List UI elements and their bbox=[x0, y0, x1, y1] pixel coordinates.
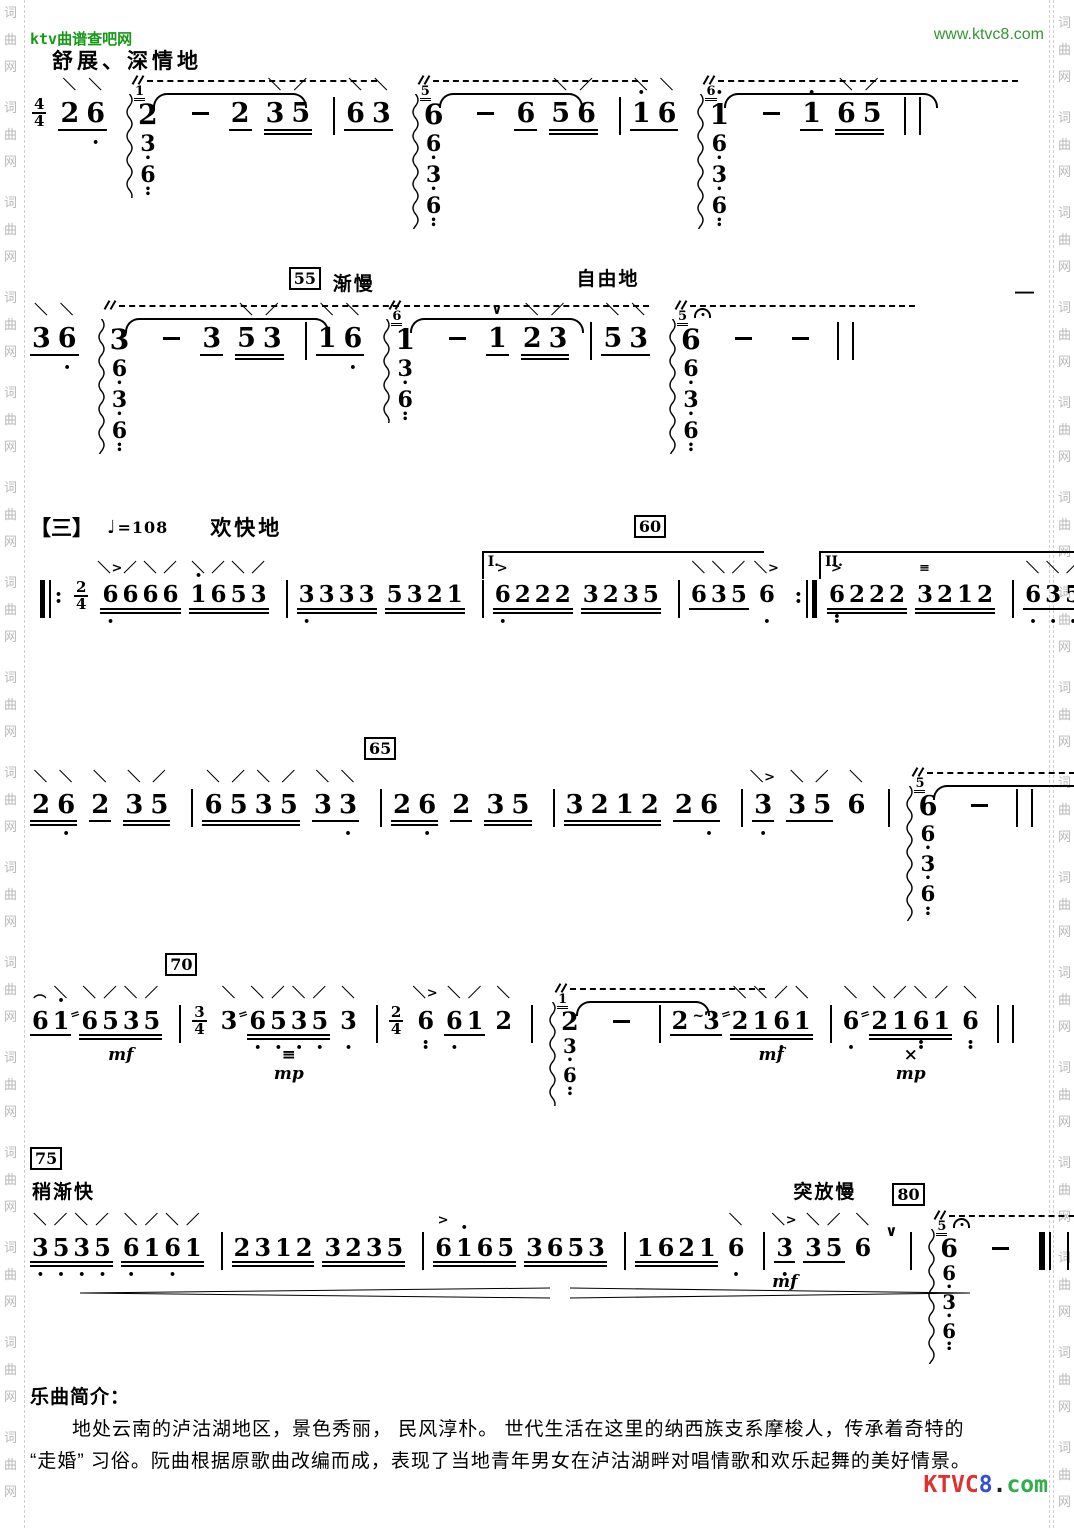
note-number: 3 bbox=[407, 583, 423, 607]
note-group: 26• bbox=[673, 792, 720, 819]
dash-note bbox=[192, 112, 209, 115]
note: 6>• • bbox=[829, 583, 845, 607]
note: 1／ bbox=[467, 1008, 484, 1033]
octave-dot-high: • bbox=[195, 573, 202, 578]
jianpu-line: 2＼6＼•2＼3＼5／6＼5／3＼5／3＼3＼•6526•235321226•3… bbox=[30, 792, 1041, 921]
watermark-char: 网 bbox=[4, 911, 17, 930]
barline bbox=[590, 322, 592, 360]
note-group: 2~3 bbox=[670, 1008, 722, 1033]
octave-dot-low: • • bbox=[116, 443, 122, 453]
note: 3＼• bbox=[291, 1008, 308, 1033]
stroke-marks: ＼ bbox=[240, 304, 254, 317]
note: 3 bbox=[254, 1235, 271, 1260]
note-number: 5 bbox=[387, 1235, 404, 1260]
watermark-char: 网 bbox=[4, 151, 17, 170]
chord-stack-note: 6• • bbox=[681, 420, 701, 453]
note: 5／ bbox=[731, 583, 747, 607]
watermark-char: 词 bbox=[4, 192, 17, 211]
note-group: 3＼5／ bbox=[803, 1235, 844, 1260]
note-number: 6 bbox=[249, 1008, 266, 1033]
ktvc8-logo[interactable]: KTVC8.com bbox=[923, 1472, 1048, 1498]
note-number: 6 bbox=[759, 583, 775, 607]
note: 1＼• bbox=[632, 100, 651, 128]
tremolo-mark: = bbox=[69, 1008, 82, 1021]
beam-row: 6＼•1／ bbox=[444, 1008, 485, 1033]
note-number: 2 bbox=[523, 325, 542, 353]
note-number: 5 bbox=[511, 792, 529, 819]
note: 2 bbox=[296, 1235, 313, 1260]
watermark-column-left: 词曲网词曲网词曲网词曲网词曲网词曲网词曲网词曲网词曲网词曲网词曲网词曲网词曲网词… bbox=[4, 0, 22, 1528]
note: 6> bbox=[435, 1235, 452, 1260]
chord-stack-note: 6• • bbox=[424, 195, 444, 228]
note: 6＼• bbox=[58, 325, 77, 353]
note-number: 2 bbox=[452, 792, 470, 819]
note-number: 6 bbox=[700, 792, 718, 819]
jianpu-line: 3＼•5／•3＼•5／•6＼•1／6＼•1／231232356>1•653653… bbox=[30, 1235, 1074, 1364]
watermark-char: 曲 bbox=[4, 789, 17, 808]
barline-wrap: 65 bbox=[380, 792, 382, 832]
chord-stack-note: 6• • bbox=[110, 420, 130, 453]
note-number: 2 bbox=[296, 1235, 313, 1260]
intro-paragraph-line-2: “走婚” 习俗。阮曲根据原歌曲改编而成，表现了当地青年男女在泸沽湖畔对唱情歌和欢… bbox=[30, 1446, 971, 1473]
note: 5 bbox=[511, 792, 529, 819]
note-group: 6 bbox=[514, 100, 537, 128]
stroke-marks: ＼ bbox=[839, 79, 853, 92]
note: 3＼ bbox=[266, 100, 285, 128]
note-number: 3 bbox=[366, 1235, 383, 1260]
chord-stack-note: 3• bbox=[709, 164, 729, 192]
stroke-marks: > bbox=[497, 562, 509, 575]
note-number: 5 bbox=[863, 100, 882, 128]
beam-row: 6＼•1／6＼•1／ bbox=[121, 1235, 204, 1260]
note: 6︵ bbox=[32, 1008, 49, 1033]
dash-note bbox=[735, 337, 752, 340]
note-number: 5 bbox=[1065, 583, 1074, 607]
note-number: 1 bbox=[933, 1008, 950, 1033]
watermark-char: 曲 bbox=[4, 1169, 17, 1188]
note-number: 3 bbox=[251, 583, 267, 607]
note: 5＼ bbox=[231, 583, 247, 607]
note: 6＼ bbox=[855, 1235, 872, 1260]
note: =2＼ bbox=[871, 1008, 888, 1033]
time-signature: 24 bbox=[389, 1005, 403, 1037]
note: 6＼>• • bbox=[417, 1008, 434, 1033]
beam-row: 2＼ bbox=[89, 792, 111, 819]
note-group: =6＼5／3＼5／mf bbox=[79, 1008, 162, 1033]
note: 1 bbox=[447, 583, 463, 607]
stroke-marks: ／ bbox=[732, 562, 746, 575]
stroke-marks: ＼ bbox=[63, 79, 77, 92]
arpeggio-wavy-line bbox=[382, 319, 391, 423]
note: 5 bbox=[567, 1235, 584, 1260]
beam-row: 6︵1＼• bbox=[30, 1008, 71, 1033]
note-group: 2＼3／ bbox=[521, 325, 570, 353]
octave-dot-low: • • bbox=[967, 1040, 974, 1050]
note-number: 5 bbox=[280, 792, 298, 819]
watermark-char: 网 bbox=[4, 1291, 17, 1310]
barline bbox=[678, 580, 680, 618]
note: 3＼ bbox=[314, 792, 332, 819]
octave-dot-low: • bbox=[1070, 619, 1074, 624]
watermark-char: 曲 bbox=[1058, 894, 1071, 913]
stroke-marks: ＼ bbox=[497, 987, 511, 1000]
note-group: 2312 bbox=[232, 1235, 315, 1260]
time-signature-denominator: 4 bbox=[192, 1020, 206, 1037]
watermark-char: 曲 bbox=[4, 124, 17, 143]
note-number: 6 bbox=[691, 583, 707, 607]
note-number: 2 bbox=[678, 1235, 695, 1260]
note-number: 2 bbox=[732, 1008, 749, 1033]
barline bbox=[333, 97, 335, 135]
note-number: 1 bbox=[753, 1008, 770, 1033]
chord-stack-note: 6• bbox=[110, 358, 130, 386]
octave-dot-low: • • bbox=[402, 412, 408, 422]
stroke-marks: ／ bbox=[145, 987, 159, 1000]
time-signature: 44 bbox=[32, 97, 46, 129]
barline bbox=[221, 1232, 223, 1270]
note-number: 3 bbox=[125, 792, 143, 819]
note-number: 3 bbox=[372, 100, 391, 128]
note-number: 5 bbox=[291, 100, 310, 128]
stroke-marks: ＼ bbox=[795, 987, 809, 1000]
note: 2 bbox=[869, 583, 885, 607]
note-group: 6＼>• • bbox=[415, 1008, 436, 1033]
site-url-link[interactable]: www.ktvc8.com bbox=[934, 26, 1044, 44]
note: 6＼• bbox=[164, 1235, 181, 1260]
note-group: 3＼5／ bbox=[264, 100, 313, 128]
note-number: 1 bbox=[191, 583, 207, 607]
beam-row: 3212 bbox=[564, 792, 661, 819]
barline bbox=[1039, 1232, 1045, 1270]
note-group: 35 bbox=[484, 792, 531, 819]
barline bbox=[830, 1005, 832, 1043]
dash-note bbox=[449, 337, 466, 340]
jianpu-line: 6︵1＼•=6＼5／3＼5／mf70343＼=6＼•5／•3＼•5／•≡ mp3… bbox=[30, 1008, 1022, 1106]
octave-dot-low: • bbox=[688, 412, 694, 417]
barline-wrap: 突放慢 bbox=[763, 1235, 765, 1274]
stroke-marks: ／ bbox=[294, 79, 308, 92]
note-group: 6＼• • bbox=[960, 1008, 981, 1033]
note-group: 26• bbox=[391, 792, 438, 819]
stroke-marks: ＼ bbox=[729, 1214, 743, 1227]
note-number: 6 bbox=[204, 792, 222, 819]
note: 2 bbox=[234, 1235, 251, 1260]
stroke-marks: ＼ bbox=[316, 771, 330, 784]
chord-block: 123•6• • bbox=[548, 1008, 579, 1106]
watermark-char: 词 bbox=[4, 382, 17, 401]
watermark-char: 词 bbox=[1058, 392, 1071, 411]
note: 6＼• bbox=[123, 1235, 140, 1260]
note-group: 1∨ bbox=[486, 325, 509, 353]
note-number: 5 bbox=[311, 1008, 328, 1033]
note: 3• bbox=[299, 583, 315, 607]
note: 2＼ bbox=[523, 325, 542, 353]
octave-dot-low: • bbox=[499, 619, 506, 624]
stroke-marks: ＼ bbox=[554, 79, 568, 92]
stroke-marks: ＼ bbox=[754, 987, 768, 1000]
beam-row: 6＼3＼5／ bbox=[689, 583, 749, 607]
octave-dot-low: • bbox=[58, 1272, 65, 1277]
note-number: 2 bbox=[60, 100, 79, 128]
dash-note bbox=[792, 337, 809, 340]
note-number: 2 bbox=[591, 792, 609, 819]
beam-row: 26• bbox=[391, 792, 438, 819]
note: 2 bbox=[393, 792, 411, 819]
note: 3＼ bbox=[788, 792, 806, 819]
stroke-marks: ＼> bbox=[413, 987, 439, 1000]
octave-dot-low: • bbox=[925, 876, 931, 881]
stroke-marks: ／ bbox=[164, 562, 178, 575]
note-number: 2 bbox=[555, 583, 571, 607]
watermark-char: 曲 bbox=[1058, 419, 1071, 438]
note-number: 6 bbox=[435, 1235, 452, 1260]
note: 5／ bbox=[230, 792, 248, 819]
barline bbox=[179, 1005, 181, 1043]
chord-column: 566•3•6• • bbox=[424, 100, 444, 228]
note: 6＼ bbox=[847, 792, 865, 819]
barline-wrap bbox=[888, 792, 890, 832]
logo-part-blue: 8 bbox=[979, 1472, 993, 1498]
octave-dot-low: • bbox=[316, 1045, 323, 1050]
chord-stack-note: 3• bbox=[918, 854, 937, 881]
note: 2＼ bbox=[495, 1008, 512, 1033]
note-group: 1• bbox=[800, 100, 823, 128]
stroke-marks: ＼ bbox=[349, 79, 363, 92]
note-number: 6 bbox=[913, 1008, 930, 1033]
watermark-char: 曲 bbox=[4, 599, 17, 618]
chord-stack-note: 6• bbox=[709, 133, 729, 161]
note-number: 2 bbox=[889, 583, 905, 607]
note-group: 6>1•65 bbox=[433, 1235, 516, 1260]
note: 3／ bbox=[251, 583, 267, 607]
repeat-begin-barline: • • bbox=[38, 583, 64, 618]
barline-wrap: 自由地 bbox=[590, 325, 592, 365]
stroke-marks: ／ bbox=[893, 987, 907, 1000]
beam-row: 3＼6＼• bbox=[30, 325, 79, 353]
barline-wrap bbox=[830, 1008, 832, 1047]
note: 2 bbox=[452, 792, 470, 819]
beam-row: 3•333 bbox=[297, 583, 377, 607]
stroke-marks: ＼ bbox=[341, 771, 355, 784]
beam-row: 2＼6＼• bbox=[58, 100, 107, 128]
note-group: 2＼6＼• bbox=[58, 100, 107, 128]
note-number: 1 bbox=[794, 1008, 811, 1033]
note-number: 2 bbox=[869, 583, 885, 607]
chord-column: 123•6• • bbox=[138, 100, 158, 197]
note: 3 bbox=[623, 583, 639, 607]
expression-marking: 舒展、深情地 bbox=[52, 45, 202, 75]
stroke-marks: ＼ bbox=[143, 562, 157, 575]
octave-dot-low: • bbox=[169, 1272, 176, 1277]
note-group: 6>• •222 bbox=[827, 583, 907, 607]
stroke-marks: ＼ bbox=[849, 771, 863, 784]
note-number: 5 bbox=[102, 1008, 119, 1033]
octave-dot-high: • bbox=[461, 1225, 468, 1230]
watermark-char: 网 bbox=[4, 1196, 17, 1215]
watermark-char: 网 bbox=[4, 531, 17, 550]
note: 3＼ bbox=[221, 1008, 238, 1033]
watermark-char: 网 bbox=[4, 341, 17, 360]
note: 6 bbox=[658, 1235, 675, 1260]
watermark-char: 词 bbox=[4, 1237, 17, 1256]
dash-note bbox=[763, 112, 780, 115]
fermata-icon bbox=[953, 1218, 970, 1228]
stroke-marks: ＼ bbox=[89, 79, 103, 92]
dynamic-label: ≡ mp bbox=[274, 1046, 304, 1084]
stroke-marks: ／ bbox=[579, 79, 593, 92]
beam-row: 3＼5／ bbox=[264, 100, 313, 128]
breath-mark: ∨ bbox=[885, 1222, 897, 1240]
stroke-marks: ／ bbox=[468, 987, 482, 1000]
barline bbox=[806, 580, 808, 618]
time-signature: 24 bbox=[74, 580, 88, 612]
octave-dot-high: • bbox=[638, 90, 645, 95]
barline bbox=[1012, 580, 1014, 618]
watermark-char: 词 bbox=[1058, 962, 1071, 981]
note: 3 bbox=[407, 583, 423, 607]
stroke-marks: ＼ bbox=[606, 304, 620, 317]
stroke-marks: ＼> bbox=[772, 1214, 798, 1227]
note: =6＼• bbox=[249, 1008, 266, 1033]
note-number: 3 bbox=[788, 792, 806, 819]
barline-wrap bbox=[333, 100, 335, 140]
tempo-value: =108 bbox=[118, 518, 169, 537]
watermark-char: 词 bbox=[1058, 12, 1071, 31]
note: 5 bbox=[643, 583, 659, 607]
octave-dot-low: • • bbox=[925, 907, 931, 917]
note-number: 3 bbox=[299, 583, 315, 607]
beam-row: 6＼ bbox=[845, 792, 867, 819]
barline bbox=[380, 789, 382, 827]
watermark-char: 曲 bbox=[4, 1454, 17, 1473]
stroke-marks: ＼ bbox=[222, 987, 236, 1000]
note: 3 bbox=[486, 792, 504, 819]
note: 5／ bbox=[813, 792, 831, 819]
beam-row: 3653 bbox=[524, 1235, 607, 1260]
barline bbox=[659, 1005, 661, 1043]
note-number: 3 bbox=[123, 1008, 140, 1033]
stroke-marks: ／ bbox=[313, 987, 327, 1000]
time-signature: 34 bbox=[192, 1005, 206, 1037]
logo-part-green: com bbox=[1006, 1472, 1048, 1498]
note: 2 bbox=[591, 792, 609, 819]
note: 6＼• bbox=[1025, 583, 1041, 607]
note-number: 3 bbox=[339, 583, 355, 607]
dash-note bbox=[613, 1020, 630, 1023]
note-number: 6 bbox=[843, 1008, 860, 1033]
chord-stack-note: 6• • bbox=[918, 884, 937, 916]
barline-wrap: 80 bbox=[910, 1235, 912, 1274]
note: 6＼• bbox=[843, 1008, 860, 1033]
note-number: 2 bbox=[937, 583, 953, 607]
chord-block: 566•3•6• • bbox=[927, 1235, 958, 1364]
beam-row: 1621 bbox=[635, 1235, 718, 1260]
note-number: 3 bbox=[711, 583, 727, 607]
beam-row: 6＼5／ bbox=[835, 100, 884, 128]
beam-row: 6＼>• • bbox=[415, 1008, 436, 1033]
note: 3 bbox=[319, 583, 335, 607]
jianpu-line: • •246＼>•6／6＼6／1＼•6／5＼3／3•3335321I.6>•22… bbox=[30, 583, 1074, 622]
octave-dot-low: • • bbox=[688, 443, 694, 453]
stroke-marks: ／ bbox=[551, 304, 565, 317]
note-group: 6＼ bbox=[845, 792, 867, 819]
chord-column: 36•3•6• • bbox=[110, 325, 130, 453]
note-number: 1 bbox=[275, 1235, 292, 1260]
chord-stack-note: 6• • bbox=[709, 195, 729, 228]
stroke-marks: ／ bbox=[865, 79, 879, 92]
logo-part-dot: . bbox=[993, 1472, 1007, 1498]
note: 2 bbox=[555, 583, 571, 607]
note-group: 2 bbox=[450, 792, 472, 819]
time-signature-denominator: 4 bbox=[389, 1020, 403, 1037]
note-number: 3 bbox=[1045, 583, 1061, 607]
octave-dot-low: • bbox=[116, 412, 122, 417]
arpeggio-wavy-line bbox=[668, 319, 677, 454]
note: 6＼• bbox=[728, 1235, 745, 1260]
barline bbox=[40, 580, 45, 618]
stroke-marks: ＼ bbox=[733, 987, 747, 1000]
note-group: 6＼•3＼•5／• bbox=[1023, 583, 1074, 607]
watermark-char: 词 bbox=[1058, 867, 1071, 886]
watermark-char: 曲 bbox=[4, 1264, 17, 1283]
note-number: 5 bbox=[231, 583, 247, 607]
watermark-char: 网 bbox=[4, 1006, 17, 1025]
chord-top-note: 6 bbox=[940, 1235, 958, 1261]
stroke-marks: ＼ bbox=[268, 79, 282, 92]
watermark-char: 词 bbox=[4, 952, 17, 971]
note-group: 6＼3＼5／ bbox=[689, 583, 749, 607]
note: 5／ bbox=[144, 1008, 161, 1033]
note-number: 3 bbox=[202, 325, 221, 353]
note: 2 bbox=[515, 583, 531, 607]
watermark-char: 词 bbox=[4, 1427, 17, 1446]
chord-block: 123•6• • bbox=[125, 100, 158, 198]
note-number: 5 bbox=[731, 583, 747, 607]
note-number: 1 bbox=[637, 1235, 654, 1260]
octave-dot-low: • bbox=[733, 1272, 740, 1277]
note: 3 bbox=[526, 1235, 543, 1260]
watermark-char: 词 bbox=[1058, 297, 1071, 316]
barline-wrap bbox=[376, 1008, 378, 1047]
octave-dot-low: • bbox=[1050, 619, 1057, 624]
barline bbox=[619, 97, 621, 135]
note-number: 2 bbox=[977, 583, 993, 607]
end-double-barline bbox=[997, 1008, 1014, 1043]
stroke-marks: ＼ bbox=[60, 304, 74, 317]
stroke-marks: ＼ bbox=[59, 771, 73, 784]
octave-dot-low: • bbox=[64, 365, 71, 370]
stroke-marks: ＼ bbox=[166, 1214, 180, 1227]
octave-dot-low: • bbox=[99, 1272, 106, 1277]
note: 3＼ bbox=[805, 1235, 822, 1260]
note: 3＼ bbox=[629, 325, 648, 353]
octave-dot-low: • • bbox=[430, 218, 436, 228]
note-number: 2 bbox=[672, 1008, 689, 1033]
note: 5 bbox=[387, 583, 403, 607]
watermark-char: 网 bbox=[4, 1386, 17, 1405]
note-number: 6 bbox=[102, 583, 118, 607]
note: 3＼• bbox=[339, 792, 357, 819]
note-number: 2 bbox=[849, 583, 865, 607]
barline-wrap bbox=[659, 1008, 661, 1047]
watermark-char: 词 bbox=[1058, 1437, 1071, 1456]
note-number: 6 bbox=[962, 1008, 979, 1033]
dashed-extension-line bbox=[949, 1215, 1074, 1217]
note-number: 1 bbox=[467, 1008, 484, 1033]
note-number: 6 bbox=[446, 1008, 463, 1033]
note: 1• bbox=[802, 100, 821, 128]
note-number: 3 bbox=[549, 325, 568, 353]
